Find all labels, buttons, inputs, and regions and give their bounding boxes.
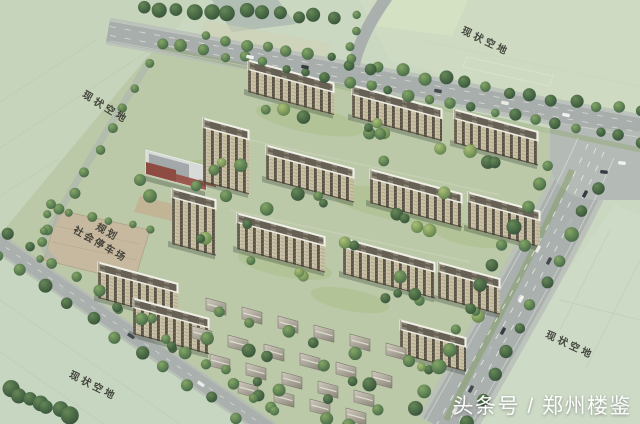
haze-overlay (0, 0, 640, 424)
aerial-masterplan-rendering: 现状空地 现状空地 规划 社会停车场 现状空地 现状空地 头条号 / 郑州楼鉴 (0, 0, 640, 424)
site-plan-canvas (0, 0, 640, 424)
watermark: 头条号 / 郑州楼鉴 (452, 390, 632, 420)
